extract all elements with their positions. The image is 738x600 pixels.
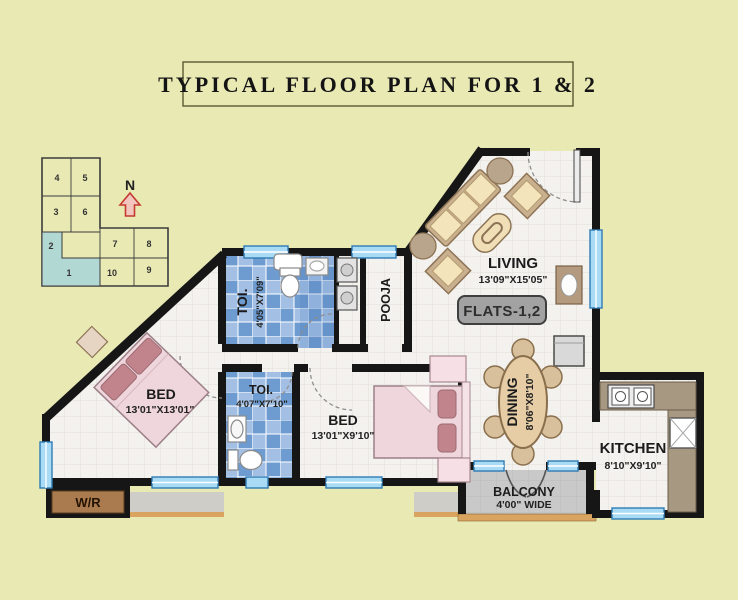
stove [608, 385, 654, 408]
wardrobe-label: W/R [75, 495, 101, 510]
keyplan-unit-5: 5 [82, 173, 87, 183]
living-dim: 13'09"X15'05" [479, 274, 548, 286]
keyplan-unit-8: 8 [146, 239, 151, 249]
window [152, 477, 218, 488]
toilet-mid-dim: 4'07"X7'10" [236, 399, 288, 410]
wc-tank [228, 450, 238, 470]
dryer-door [341, 292, 353, 304]
bedside-table [76, 326, 107, 357]
basin-bowl [310, 261, 324, 271]
window [246, 477, 268, 488]
fridge [554, 336, 584, 366]
floor-plan-canvas: TYPICAL FLOOR PLAN FOR 1 & 2 4 5 3 6 2 1… [0, 0, 738, 600]
window [590, 230, 602, 308]
living-label: LIVING [488, 255, 538, 272]
bed-mid-dim: 13'01"X9'10" [312, 430, 375, 442]
pillow [438, 390, 456, 418]
washer-door [341, 264, 353, 276]
headboard [462, 382, 470, 460]
ledge-left-sill [130, 512, 224, 517]
bed-left-label: BED [146, 386, 176, 402]
window [352, 246, 396, 258]
dining-dim: 8'06"X8'10" [524, 373, 536, 430]
toilet-top-dim: 4'05"X7'09" [255, 276, 266, 328]
north-arrow: N [120, 177, 140, 216]
floor-plan-page: TYPICAL FLOOR PLAN FOR 1 & 2 4 5 3 6 2 1… [0, 0, 738, 600]
pillow [438, 424, 456, 452]
bed-mid-label: BED [328, 412, 358, 428]
keyplan-unit-6: 6 [82, 207, 87, 217]
window [326, 477, 382, 488]
basin-bowl [231, 420, 243, 438]
dining-label: DINING [504, 377, 520, 426]
wash-basin [556, 266, 582, 304]
balcony-label: BALCONY [493, 485, 555, 499]
keyplan-unit-1: 1 [66, 268, 71, 278]
bed-left-dim: 13'01"X13'01" [126, 404, 195, 416]
wardrobe [430, 356, 466, 382]
key-plan: 4 5 3 6 2 1 7 8 10 9 N [42, 158, 168, 286]
wardrobe [438, 458, 470, 482]
page-title: TYPICAL FLOOR PLAN FOR 1 & 2 [158, 72, 598, 97]
flats-badge-label: FLATS-1,2 [463, 303, 541, 320]
side-table [410, 233, 436, 259]
north-arrow-icon [120, 193, 140, 216]
window [612, 508, 664, 519]
toilet-mid-label: TOI. [249, 383, 273, 397]
kitchen-sink [670, 418, 696, 448]
entrance-door-panel [574, 150, 580, 202]
wc [240, 451, 262, 470]
pooja-label: POOJA [379, 278, 393, 322]
window [40, 442, 52, 488]
keyplan-unit-4: 4 [54, 173, 59, 183]
kitchen-label: KITCHEN [600, 440, 667, 457]
ledge-mid-sill [414, 512, 462, 517]
keyplan-unit-2: 2 [48, 241, 53, 251]
keyplan-unit-3: 3 [53, 207, 58, 217]
balcony-dim: 4'00" WIDE [496, 499, 551, 511]
ledge-mid [414, 492, 462, 514]
keyplan-unit-9: 9 [146, 265, 151, 275]
window [474, 461, 504, 471]
toilet-top-label: TOI. [234, 289, 250, 316]
window [548, 461, 578, 471]
flats-badge: FLATS-1,2 [458, 296, 546, 324]
wardrobe-box: W/R [46, 486, 130, 518]
keyplan-unit-10: 10 [107, 268, 117, 278]
wc [281, 275, 299, 297]
balcony-edge-sill [458, 514, 596, 521]
kitchen-dim: 8'10"X9'10" [605, 460, 662, 472]
title-box: TYPICAL FLOOR PLAN FOR 1 & 2 [158, 62, 598, 106]
north-label: N [125, 177, 135, 193]
ledge-left [130, 492, 224, 514]
keyplan-unit-7: 7 [112, 239, 117, 249]
side-table [487, 158, 513, 184]
